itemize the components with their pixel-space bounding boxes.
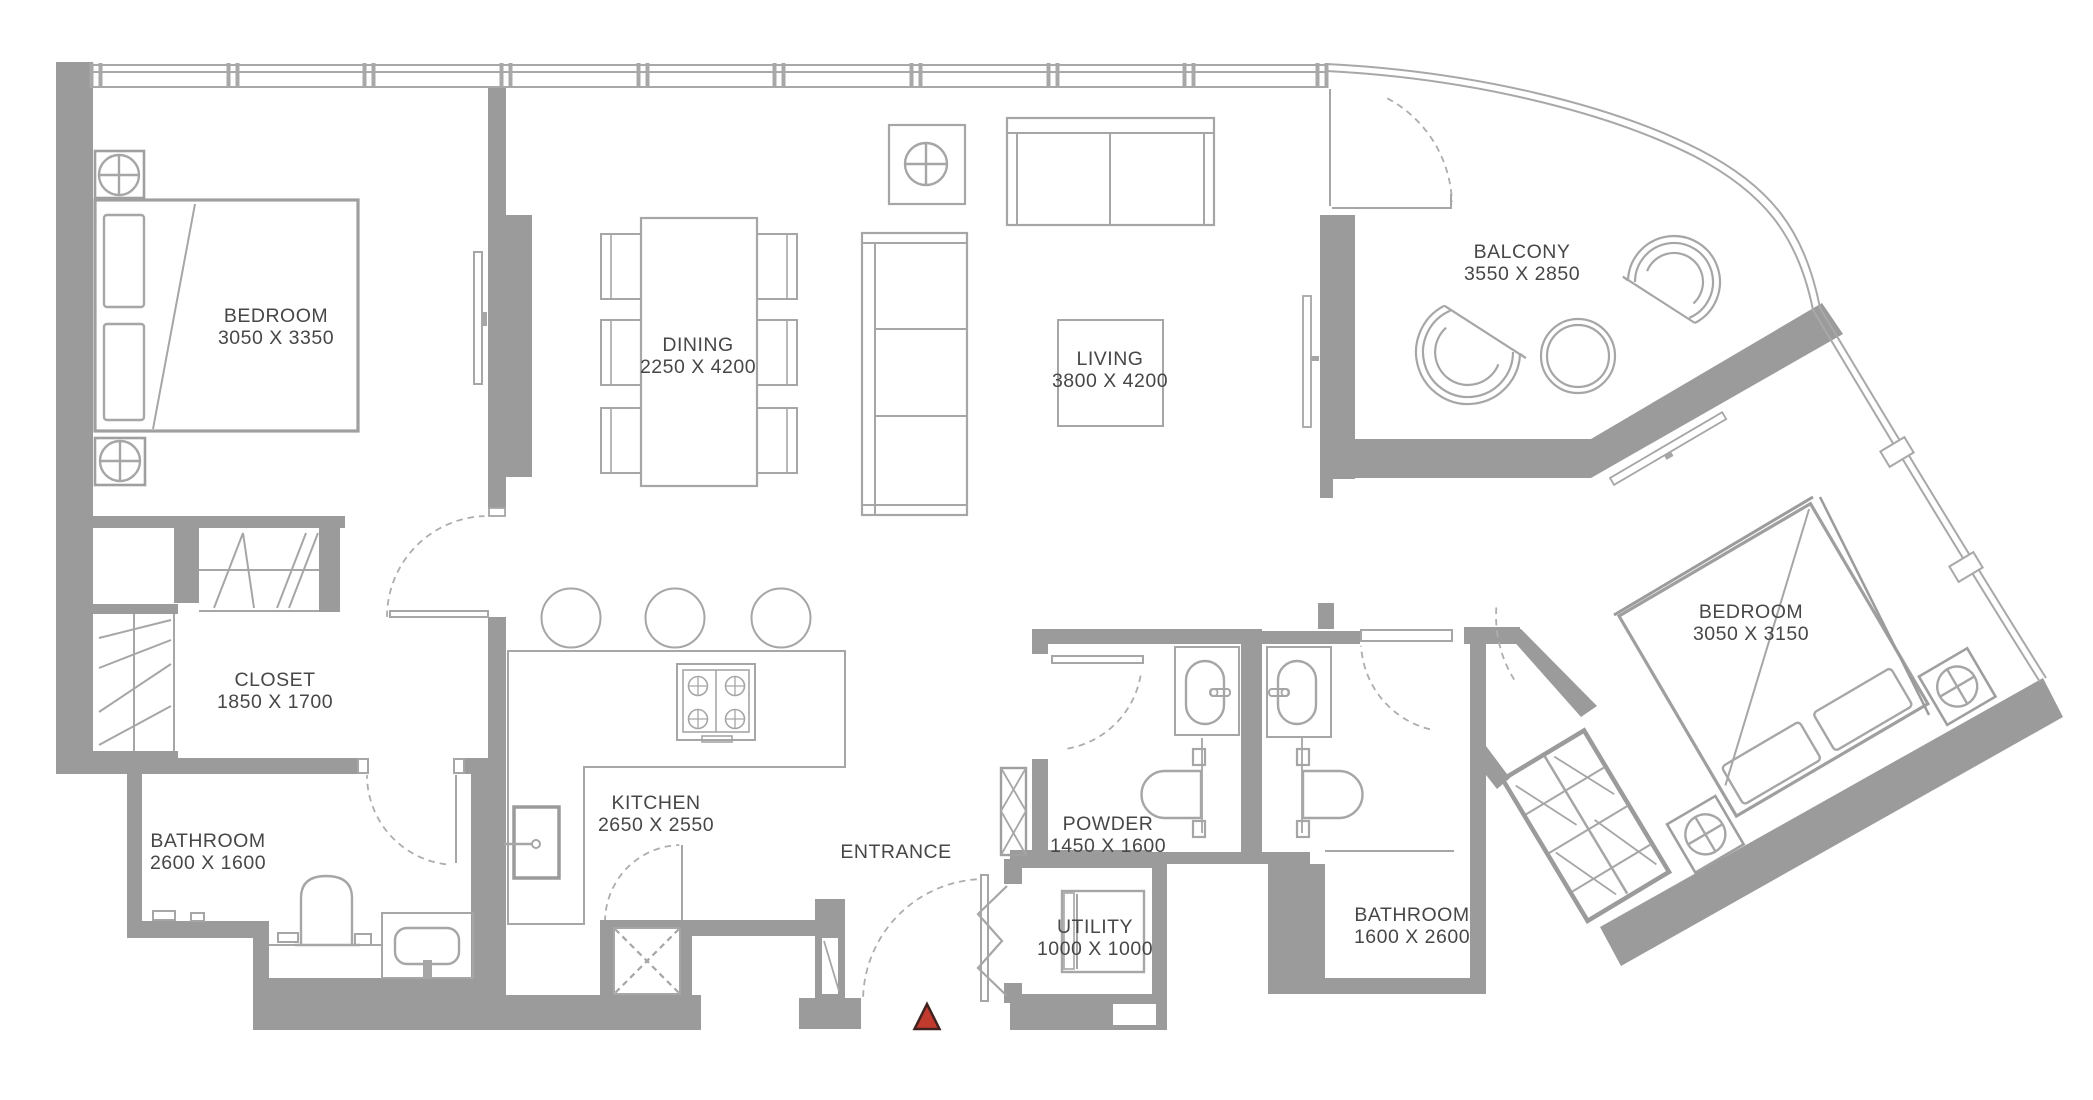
svg-text:1000 X 1000: 1000 X 1000 [1037,938,1153,960]
svg-text:CLOSET: CLOSET [234,669,315,691]
svg-text:1600 X 2600: 1600 X 2600 [1354,926,1470,948]
svg-text:3800 X 4200: 3800 X 4200 [1052,370,1168,392]
svg-text:LIVING: LIVING [1077,348,1144,370]
svg-text:BATHROOM: BATHROOM [1354,904,1469,926]
svg-text:1450 X 1600: 1450 X 1600 [1050,835,1166,857]
svg-text:DINING: DINING [662,334,733,356]
svg-text:2250 X 4200: 2250 X 4200 [640,356,756,378]
svg-text:2600 X 1600: 2600 X 1600 [150,852,266,874]
svg-text:UTILITY: UTILITY [1057,916,1133,938]
svg-text:POWDER: POWDER [1063,813,1154,835]
svg-text:2650 X 2550: 2650 X 2550 [598,814,714,836]
svg-text:BEDROOM: BEDROOM [224,305,328,327]
svg-text:3050 X 3350: 3050 X 3350 [218,327,334,349]
svg-text:3050 X 3150: 3050 X 3150 [1693,623,1809,645]
svg-text:KITCHEN: KITCHEN [611,792,700,814]
svg-text:BALCONY: BALCONY [1474,241,1571,263]
svg-text:ENTRANCE: ENTRANCE [840,841,951,863]
svg-text:3550 X 2850: 3550 X 2850 [1464,263,1580,285]
svg-text:BEDROOM: BEDROOM [1699,601,1803,623]
svg-text:1850 X 1700: 1850 X 1700 [217,691,333,713]
svg-text:BATHROOM: BATHROOM [150,830,265,852]
